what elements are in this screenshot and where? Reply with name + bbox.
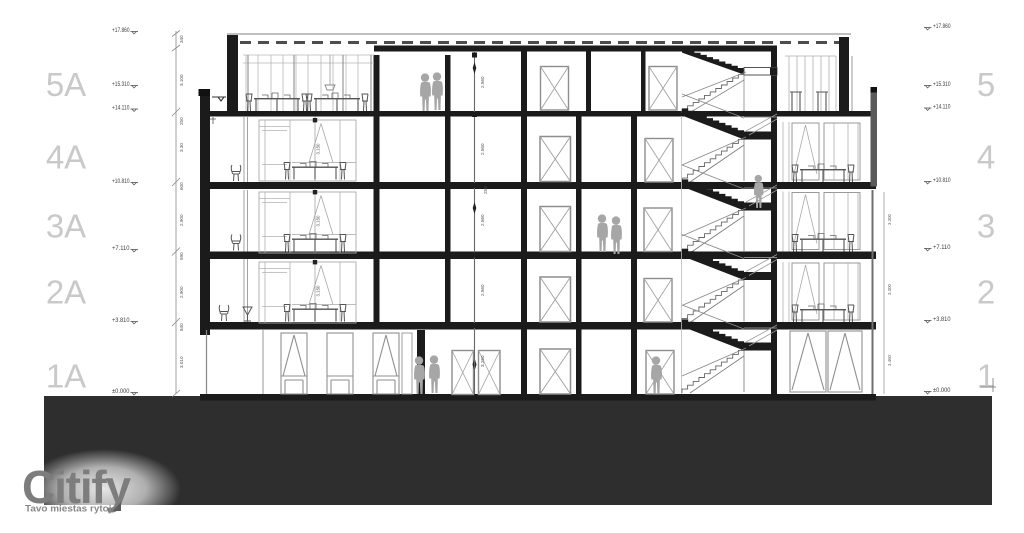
svg-text:3.300: 3.300 [887, 283, 892, 295]
svg-text:3.30: 3.30 [179, 143, 184, 152]
svg-text:3.100: 3.100 [179, 74, 184, 86]
svg-text:2.560: 2.560 [480, 143, 485, 155]
svg-text:3.010: 3.010 [179, 356, 184, 368]
svg-text:+14.110: +14.110 [112, 106, 130, 112]
svg-text:+7.110: +7.110 [933, 245, 951, 251]
svg-text:2.560: 2.560 [480, 214, 485, 226]
svg-text:5: 5 [977, 66, 995, 103]
svg-text:+10.810: +10.810 [112, 179, 130, 185]
svg-text:250: 250 [179, 117, 184, 125]
svg-text:3.300: 3.300 [887, 213, 892, 225]
svg-text:600: 600 [179, 182, 184, 190]
svg-text:590: 590 [179, 252, 184, 260]
svg-text:+17.860: +17.860 [112, 28, 130, 34]
svg-text:2.900: 2.900 [179, 214, 184, 226]
svg-text:840: 840 [179, 323, 184, 331]
svg-text:+14.110: +14.110 [933, 105, 951, 111]
svg-text:4A: 4A [46, 139, 86, 176]
svg-text:4: 4 [977, 139, 995, 176]
svg-text:5A: 5A [46, 66, 86, 103]
svg-text:+17.860: +17.860 [933, 24, 951, 30]
svg-text:1A: 1A [46, 358, 86, 395]
svg-text:2.900: 2.900 [179, 286, 184, 298]
svg-text:+7.110: +7.110 [112, 246, 130, 252]
svg-text:+15.310: +15.310 [112, 82, 130, 88]
svg-text:2: 2 [977, 274, 995, 311]
svg-text:3A: 3A [46, 208, 86, 245]
svg-text:+15.310: +15.310 [933, 82, 951, 88]
svg-text:+3.810: +3.810 [933, 317, 951, 323]
svg-text:+10.810: +10.810 [933, 178, 951, 184]
svg-text:3: 3 [977, 208, 995, 245]
svg-text:2.560: 2.560 [480, 76, 485, 88]
svg-text:1: 1 [977, 358, 995, 395]
svg-text:±0.000: ±0.000 [112, 389, 130, 395]
svg-text:250: 250 [483, 186, 488, 194]
svg-text:3.260: 3.260 [480, 355, 485, 367]
svg-text:±0.000: ±0.000 [933, 388, 951, 394]
svg-text:Tavo miestas rytoj: Tavo miestas rytoj [25, 504, 112, 514]
svg-text:+3.810: +3.810 [112, 318, 130, 324]
svg-text:2.560: 2.560 [480, 284, 485, 296]
svg-text:340: 340 [179, 35, 184, 43]
svg-text:2A: 2A [46, 274, 86, 311]
svg-text:3.460: 3.460 [887, 354, 892, 366]
